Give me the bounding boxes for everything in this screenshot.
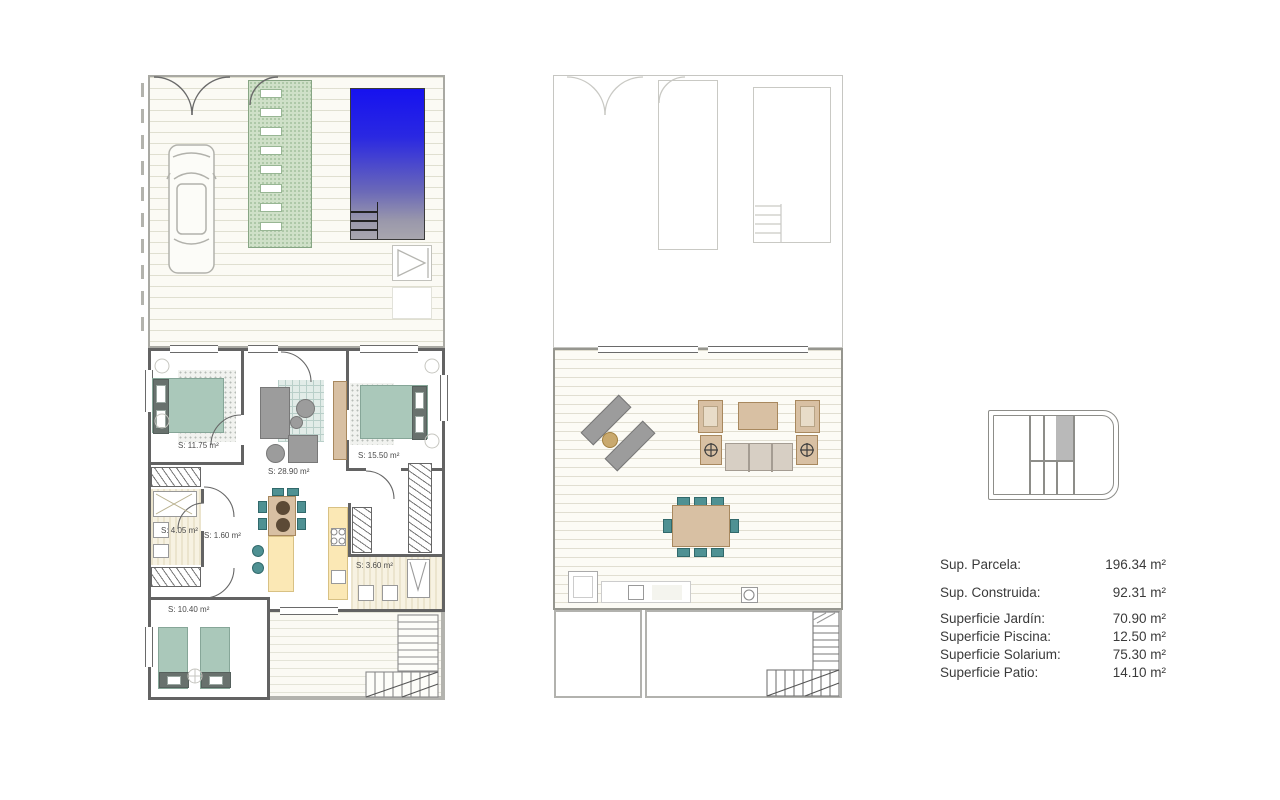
room-label: S: 11.75 m²: [178, 441, 219, 450]
patio-outline: [645, 610, 842, 698]
legend-label: Sup. Construida:: [940, 584, 1041, 601]
dining-table: [268, 496, 296, 536]
dining-chair: [711, 548, 724, 557]
wall: [348, 503, 351, 554]
coffee-table: [266, 444, 285, 463]
window: [170, 345, 218, 353]
pool-steps: [351, 202, 378, 239]
legend-value: 92.31 m²: [1113, 584, 1166, 601]
side-table: [700, 435, 722, 465]
shower: [407, 559, 430, 598]
legend-label: Superficie Jardín:: [940, 610, 1045, 627]
legend-label: Sup. Parcela:: [940, 556, 1021, 573]
dining-chair: [297, 518, 306, 530]
walkway-outline: [658, 80, 718, 250]
toilet: [382, 585, 398, 601]
key-plan: [988, 410, 1119, 500]
key-plan-divider: [1029, 460, 1074, 462]
coffee-table: [738, 402, 778, 430]
garden-pad: [392, 287, 432, 319]
tv-unit: [333, 381, 347, 460]
sofa: [725, 443, 793, 471]
solarium-plan: [553, 75, 843, 700]
room-label: S: 3.60 m²: [356, 561, 393, 570]
legend-value: 14.10 m²: [1113, 664, 1166, 681]
stool: [252, 562, 264, 574]
side-table: [296, 399, 315, 418]
stepping-stone: [260, 89, 282, 98]
armchair: [795, 400, 820, 433]
plot-boundary: [141, 83, 144, 339]
sink: [628, 585, 644, 600]
wardrobe: [408, 463, 432, 553]
legend-row: Superficie Jardín: 70.90 m²: [940, 610, 1166, 627]
dining-chair: [258, 501, 267, 513]
room-label: S: 10.40 m²: [168, 605, 209, 614]
wall: [241, 445, 244, 462]
legend-row: Superficie Piscina: 12.50 m²: [940, 628, 1166, 645]
legend-value: 196.34 m²: [1105, 556, 1166, 573]
side-table: [290, 416, 303, 429]
dining-chair: [287, 488, 299, 496]
dining-chair: [297, 501, 306, 513]
surface-legend: Sup. Parcela: 196.34 m² Sup. Construida:…: [940, 556, 1166, 681]
dining-chair: [258, 518, 267, 530]
floor-drain: [741, 587, 758, 603]
closet: [352, 507, 372, 553]
dining-table: [672, 505, 730, 547]
stove: [331, 528, 346, 546]
wall: [346, 468, 366, 471]
window: [440, 375, 448, 421]
legend-value: 12.50 m²: [1113, 628, 1166, 645]
ground-floor-plan: S: 11.75 m² S: 4.05 m² S: 1.60 m² S: 28.…: [148, 75, 445, 700]
counter: [601, 581, 691, 603]
side-table: [796, 435, 818, 465]
room-label: S: 15.50 m²: [358, 451, 399, 460]
stepping-stone: [260, 146, 282, 155]
wall: [148, 462, 244, 465]
stepping-stone: [260, 184, 282, 193]
pool-outline: [753, 87, 831, 243]
terrace-opening: [598, 346, 698, 353]
legend-row: Sup. Parcela: 196.34 m²: [940, 556, 1166, 573]
terrace-opening: [708, 346, 808, 353]
wardrobe: [151, 567, 201, 587]
single-bed: [200, 627, 230, 689]
dining-chair: [663, 519, 672, 533]
sink: [331, 570, 346, 584]
legend-row: Superficie Patio: 14.10 m²: [940, 664, 1166, 681]
window: [145, 627, 153, 667]
garden-walkway: [248, 80, 312, 248]
single-bed: [158, 627, 188, 689]
shower-tray: [153, 491, 197, 517]
dining-chair: [730, 519, 739, 533]
legend-label: Superficie Solarium:: [940, 646, 1061, 663]
patio-door: [280, 607, 338, 615]
double-bed: [152, 378, 224, 433]
toilet: [153, 544, 169, 558]
legend-row: Superficie Solarium: 75.30 m²: [940, 646, 1166, 663]
dining-chair: [272, 488, 284, 496]
dining-chair: [694, 548, 707, 557]
legend-value: 70.90 m²: [1113, 610, 1166, 627]
sink: [358, 585, 374, 601]
dining-chair: [677, 548, 690, 557]
room-label: S: 28.90 m²: [268, 467, 309, 476]
armchair: [698, 400, 723, 433]
stool: [252, 545, 264, 557]
window: [248, 345, 278, 353]
counter-unit: [568, 571, 598, 603]
double-bed: [360, 385, 428, 439]
legend-value: 75.30 m²: [1113, 646, 1166, 663]
room-label: S: 1.60 m²: [204, 531, 241, 540]
highlighted-unit: [1056, 416, 1073, 460]
wall: [241, 348, 244, 415]
key-plan-inner: [993, 415, 1114, 495]
patio-outline: [554, 610, 642, 698]
sofa: [260, 387, 290, 439]
outdoor-shower: [392, 245, 432, 281]
pool: [350, 88, 425, 240]
side-table: [602, 432, 618, 448]
wardrobe: [151, 467, 201, 487]
stepping-stone: [260, 222, 282, 231]
armchair: [288, 435, 318, 463]
stepping-stone: [260, 127, 282, 136]
kitchen-island: [268, 536, 294, 592]
patio: [270, 612, 445, 700]
room-label: S: 4.05 m²: [161, 526, 198, 535]
legend-row: Sup. Construida: 92.31 m²: [940, 584, 1166, 601]
stepping-stone: [260, 165, 282, 174]
stepping-stone: [260, 108, 282, 117]
kitchen-counter: [328, 507, 348, 600]
floor-plan-sheet: S: 11.75 m² S: 4.05 m² S: 1.60 m² S: 28.…: [0, 0, 1280, 800]
legend-label: Superficie Piscina:: [940, 628, 1051, 645]
legend-label: Superficie Patio:: [940, 664, 1038, 681]
wall: [201, 489, 204, 503]
window: [360, 345, 418, 353]
stepping-stone: [260, 203, 282, 212]
